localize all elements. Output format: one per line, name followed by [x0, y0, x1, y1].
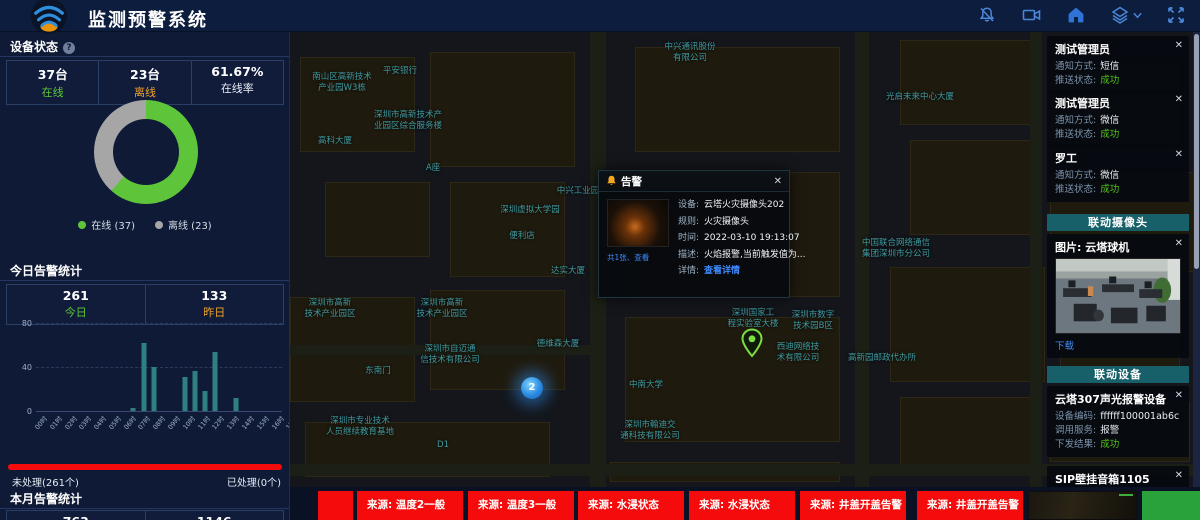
- camera-card-title: 图片: 云塔球机: [1055, 239, 1181, 255]
- month-alarms-stats: 7631146: [6, 510, 284, 520]
- close-icon[interactable]: ✕: [1175, 390, 1183, 401]
- bottom-alert-strip: 来源: 温度2一般来源: 温度3一般来源: 水浸状态来源: 水浸状态来源: 井盖…: [290, 487, 1200, 520]
- bar-slot: [262, 323, 272, 411]
- map-label: 中南大学: [629, 380, 663, 391]
- device-status-donut-chart: [94, 100, 198, 204]
- map-label: 深圳市高新 技术产业园区: [304, 298, 355, 320]
- bar: [151, 367, 156, 411]
- row-value: 火焰报警,当前触发值为...: [704, 250, 805, 260]
- app-logo-icon: [30, 0, 68, 39]
- row-label: 通知方式:: [1055, 61, 1096, 72]
- stat-cell: 23台离线: [98, 61, 190, 104]
- map-label: 西迪网络技 术有限公司: [777, 342, 820, 364]
- notification-row: 通知方式:短信: [1055, 60, 1181, 74]
- row-label: 描述:: [678, 250, 699, 260]
- bar-slot: [210, 323, 220, 411]
- app-header: 监测预警系统: [0, 0, 1200, 32]
- alert-tile[interactable]: 来源: 温度2一般: [357, 491, 463, 520]
- view-details-link[interactable]: 查看详情: [704, 266, 740, 276]
- legend-dot: [155, 221, 163, 229]
- layers-icon[interactable]: [1110, 5, 1142, 25]
- bar: [203, 391, 208, 411]
- alert-snapshot-image[interactable]: [607, 199, 669, 247]
- row-label: 推送状态:: [1055, 75, 1096, 86]
- alert-popup: 告警 ✕ 共1张、查看 设备:云塔火灾摄像头202规则:火灾摄像头时间:2022…: [598, 170, 790, 298]
- page-title: 监测预警系统: [88, 6, 208, 32]
- map-label: 德维森大厦: [537, 339, 580, 350]
- device-card-row: 下发结果:成功: [1055, 438, 1181, 452]
- row-label: 设备编码:: [1055, 411, 1096, 422]
- y-axis-tick: 40: [8, 363, 32, 372]
- scrollbar-thumb[interactable]: [1194, 34, 1199, 269]
- map-building-block: [430, 52, 575, 167]
- bar-slot: [57, 323, 67, 411]
- map-label: 深圳市自迈通 信技术有限公司: [420, 344, 480, 366]
- bar-slot: [272, 323, 282, 411]
- handled-legend: 已处理(0个): [223, 474, 281, 489]
- header-toolbar: [977, 5, 1186, 25]
- device-card-title: SIP壁挂音箱1105: [1055, 471, 1181, 487]
- donut-legend: 在线 (37)离线 (23): [0, 217, 290, 232]
- linked-device-card: ✕云塔307声光报警设备设备编码:ffffff100001ab6c调用服务:报警…: [1047, 386, 1189, 457]
- alert-tile[interactable]: 来源: 井盖开盖告警: [800, 491, 906, 520]
- row-value: 成功: [1100, 75, 1119, 86]
- map-building-block: [900, 40, 1035, 125]
- row-label: 调用服务:: [1055, 425, 1096, 436]
- row-label: 推送状态:: [1055, 184, 1096, 195]
- chevron-down-icon: [1133, 12, 1142, 19]
- stat-cell: 61.67%在线率: [191, 61, 283, 104]
- fullscreen-icon[interactable]: [1166, 5, 1186, 25]
- bar-slot: [241, 323, 251, 411]
- notification-row: 推送状态:成功: [1055, 128, 1181, 142]
- map-label: 深圳市翰迪交 通科技有限公司: [620, 420, 680, 442]
- notification-card: ✕测试管理员通知方式:微信推送状态:成功: [1047, 90, 1189, 147]
- row-label: 详情:: [678, 266, 699, 276]
- stat-label: 离线: [99, 84, 190, 100]
- bar-slot: [108, 323, 118, 411]
- device-status-stats: 37台在线23台离线61.67%在线率: [6, 60, 284, 105]
- stat-label: 在线率: [192, 80, 283, 96]
- notification-row: 推送状态:成功: [1055, 183, 1181, 197]
- bar-slot: [46, 323, 56, 411]
- row-value: 2022-03-10 19:13:07: [704, 233, 800, 243]
- legend-dot: [78, 221, 86, 229]
- bar-slot: [98, 323, 108, 411]
- video-camera-icon[interactable]: [1021, 5, 1042, 25]
- alert-tile[interactable]: 来源: 水浸状态: [578, 491, 684, 520]
- bar: [141, 343, 146, 411]
- linked-camera-header: 联动摄像头: [1047, 214, 1189, 231]
- stat-label: 在线: [7, 84, 98, 100]
- bar-slot: [200, 323, 210, 411]
- map-label: 中国联合网络通信 集团深圳市分公司: [862, 238, 930, 260]
- stat-cell: 1146: [145, 511, 284, 520]
- bar-slot: [118, 323, 128, 411]
- row-label: 推送状态:: [1055, 129, 1096, 140]
- map-label: 高科大厦: [318, 136, 352, 147]
- alert-tile[interactable]: 来源: 温度3一般: [468, 491, 574, 520]
- map-label: 深圳市高新 技术产业园区: [416, 298, 467, 320]
- close-icon[interactable]: ✕: [1175, 40, 1183, 51]
- map-road: [1030, 32, 1042, 487]
- row-value: 微信: [1100, 170, 1119, 181]
- map-label: 光启未来中心大厦: [886, 92, 954, 103]
- row-value: 成功: [1100, 129, 1119, 140]
- alert-detail-row: 详情:查看详情: [678, 265, 806, 279]
- bar-slot: [159, 323, 169, 411]
- download-link[interactable]: 下载: [1055, 338, 1074, 352]
- map-label: 深圳市专业技术 人员继续教育基地: [326, 416, 394, 438]
- bar: [233, 398, 238, 411]
- alert-detail-row: 描述:火焰报警,当前触发值为...: [678, 249, 806, 263]
- device-card-row: 调用服务:报警: [1055, 424, 1181, 438]
- help-icon[interactable]: ?: [63, 42, 75, 54]
- alert-popup-title: 告警: [621, 174, 642, 189]
- unhandled-progress-bar: [8, 464, 282, 470]
- map-label: D1: [437, 440, 449, 451]
- y-axis-tick: 80: [8, 319, 32, 328]
- bar-slot: [128, 323, 138, 411]
- alert-detail-row: 规则:火灾摄像头: [678, 216, 806, 230]
- map-label: 平安银行: [383, 66, 417, 77]
- bar-slot: [139, 323, 149, 411]
- map-cluster-marker[interactable]: 2: [521, 377, 543, 399]
- close-icon[interactable]: ✕: [1175, 470, 1183, 481]
- today-alarms-title: 今日告警统计: [0, 262, 290, 281]
- map-label: 东南门: [365, 366, 391, 377]
- row-label: 规则:: [678, 217, 699, 227]
- bar-slot: [87, 323, 97, 411]
- map-building-block: [910, 140, 1035, 235]
- close-icon[interactable]: ✕: [1175, 238, 1183, 249]
- stat-value: 61.67%: [192, 64, 283, 79]
- map-label: 深圳市数字 技术园B区: [792, 310, 835, 332]
- row-value: ffffff100001ab6c: [1100, 411, 1179, 422]
- camera-snapshot-image[interactable]: [1055, 258, 1181, 334]
- linked-device-card: ✕SIP壁挂音箱1105设备编码:1105: [1047, 466, 1189, 487]
- device-status-title: 设备状态?: [0, 38, 290, 57]
- progress-legend: 未处理(261个) 已处理(0个): [8, 474, 281, 489]
- row-label: 通知方式:: [1055, 170, 1096, 181]
- sidebar-scrollbar: [1193, 32, 1200, 487]
- bell-muted-icon[interactable]: [977, 5, 997, 25]
- bar-slot: [36, 323, 46, 411]
- map-label: 达实大厦: [551, 266, 585, 277]
- month-alarms-title: 本月告警统计: [0, 490, 290, 509]
- bar-slot: [221, 323, 231, 411]
- stat-value: 1146: [146, 514, 284, 520]
- row-label: 设备:: [678, 200, 699, 210]
- legend-label: 在线 (37): [91, 217, 135, 232]
- notification-recipient: 罗工: [1055, 150, 1181, 166]
- map-label: 南山区高新技术 产业园W3栋: [312, 72, 372, 94]
- device-card-title: 云塔307声光报警设备: [1055, 391, 1181, 407]
- row-label: 下发结果:: [1055, 439, 1096, 450]
- map-label: 便利店: [509, 231, 535, 242]
- notification-card: ✕测试管理员通知方式:短信推送状态:成功: [1047, 36, 1189, 93]
- stat-value: 261: [7, 288, 145, 303]
- snapshot-caption-link[interactable]: 共1张、查看: [607, 252, 669, 263]
- bar-slot: [231, 323, 241, 411]
- hourly-alarm-bar-chart: 80 40 0 00时01时02时03时04时05时06时07时08时09时10…: [0, 317, 290, 442]
- alarm-bell-icon: [606, 175, 617, 187]
- stat-cell: 763: [7, 511, 145, 520]
- map-building-block: [450, 182, 565, 277]
- map-building-block: [900, 397, 1040, 467]
- row-value: 报警: [1100, 425, 1119, 436]
- alert-tile[interactable]: 来源: 井盖开盖告警: [917, 491, 1023, 520]
- stat-value: 37台: [7, 64, 98, 83]
- row-value: 成功: [1100, 439, 1119, 450]
- stat-value: 763: [7, 514, 145, 520]
- bar-slot: [180, 323, 190, 411]
- alert-popup-header: 告警 ✕: [599, 171, 789, 192]
- alert-tile[interactable]: 来源: 水浸状态: [689, 491, 795, 520]
- bar-slot: [190, 323, 200, 411]
- stat-cell: 37台在线: [7, 61, 98, 104]
- legend-label: 离线 (23): [168, 217, 212, 232]
- bar: [131, 408, 136, 411]
- close-icon[interactable]: ✕: [1175, 149, 1183, 160]
- alert-snapshot-tile[interactable]: [1028, 491, 1137, 520]
- bar: [213, 352, 218, 411]
- map-label: 深圳国家工 程实验室大楼: [727, 308, 778, 330]
- alert-tile[interactable]: [318, 491, 353, 520]
- map-label: 深圳市高新技术产 业园区综合服务楼: [374, 110, 442, 132]
- map-building-block: [890, 267, 1045, 382]
- stat-value: 133: [146, 288, 284, 303]
- unhandled-legend: 未处理(261个): [8, 474, 79, 489]
- map-label: A座: [426, 163, 440, 174]
- bar-slot: [251, 323, 261, 411]
- notification-row: 通知方式:微信: [1055, 114, 1181, 128]
- row-label: 通知方式:: [1055, 115, 1096, 126]
- y-axis-tick: 0: [8, 407, 32, 416]
- close-icon[interactable]: ✕: [1175, 94, 1183, 105]
- alert-detail-row: 时间:2022-03-10 19:13:07: [678, 232, 806, 246]
- legend-item[interactable]: 离线 (23): [155, 217, 212, 232]
- row-value: 火灾摄像头: [704, 217, 749, 227]
- device-card-row: 设备编码:ffffff100001ab6c: [1055, 410, 1181, 424]
- bar-slot: [169, 323, 179, 411]
- bar-slot: [77, 323, 87, 411]
- row-value: 云塔火灾摄像头202: [704, 200, 784, 210]
- map-label: 中兴通讯股份 有限公司: [664, 42, 715, 64]
- right-sidebar: ✕测试管理员通知方式:短信推送状态:成功✕测试管理员通知方式:微信推送状态:成功…: [1045, 32, 1193, 487]
- home-icon[interactable]: [1066, 5, 1086, 25]
- alert-detail-row: 设备:云塔火灾摄像头202: [678, 199, 806, 213]
- row-value: 成功: [1100, 184, 1119, 195]
- map-location-pin-icon[interactable]: [740, 328, 764, 362]
- map-label: 中兴工业园: [557, 186, 600, 197]
- notification-row: 通知方式:微信: [1055, 169, 1181, 183]
- bar-slot: [67, 323, 77, 411]
- left-stats-panel: 设备状态? 37台在线23台离线61.67%在线率 在线 (37)离线 (23)…: [0, 32, 290, 520]
- notification-recipient: 测试管理员: [1055, 95, 1181, 111]
- bar: [182, 377, 187, 411]
- map-label: 高新园邮政代办所: [848, 353, 916, 364]
- notification-row: 推送状态:成功: [1055, 74, 1181, 88]
- map-label: 深圳虚拟大学园: [500, 205, 560, 216]
- alert-green-tile[interactable]: [1142, 491, 1200, 520]
- map-building-block: [325, 182, 430, 257]
- notification-recipient: 测试管理员: [1055, 41, 1181, 57]
- row-label: 时间:: [678, 233, 699, 243]
- row-value: 短信: [1100, 61, 1119, 72]
- linked-camera-card: ✕ 图片: 云塔球机 下载: [1047, 234, 1189, 358]
- notification-card: ✕罗工通知方式:微信推送状态:成功: [1047, 145, 1189, 202]
- row-value: 微信: [1100, 115, 1119, 126]
- close-icon[interactable]: ✕: [774, 176, 782, 187]
- linked-devices-header: 联动设备: [1047, 366, 1189, 383]
- legend-item[interactable]: 在线 (37): [78, 217, 135, 232]
- stat-value: 23台: [99, 64, 190, 83]
- bar-slot: [149, 323, 159, 411]
- bar: [192, 371, 197, 411]
